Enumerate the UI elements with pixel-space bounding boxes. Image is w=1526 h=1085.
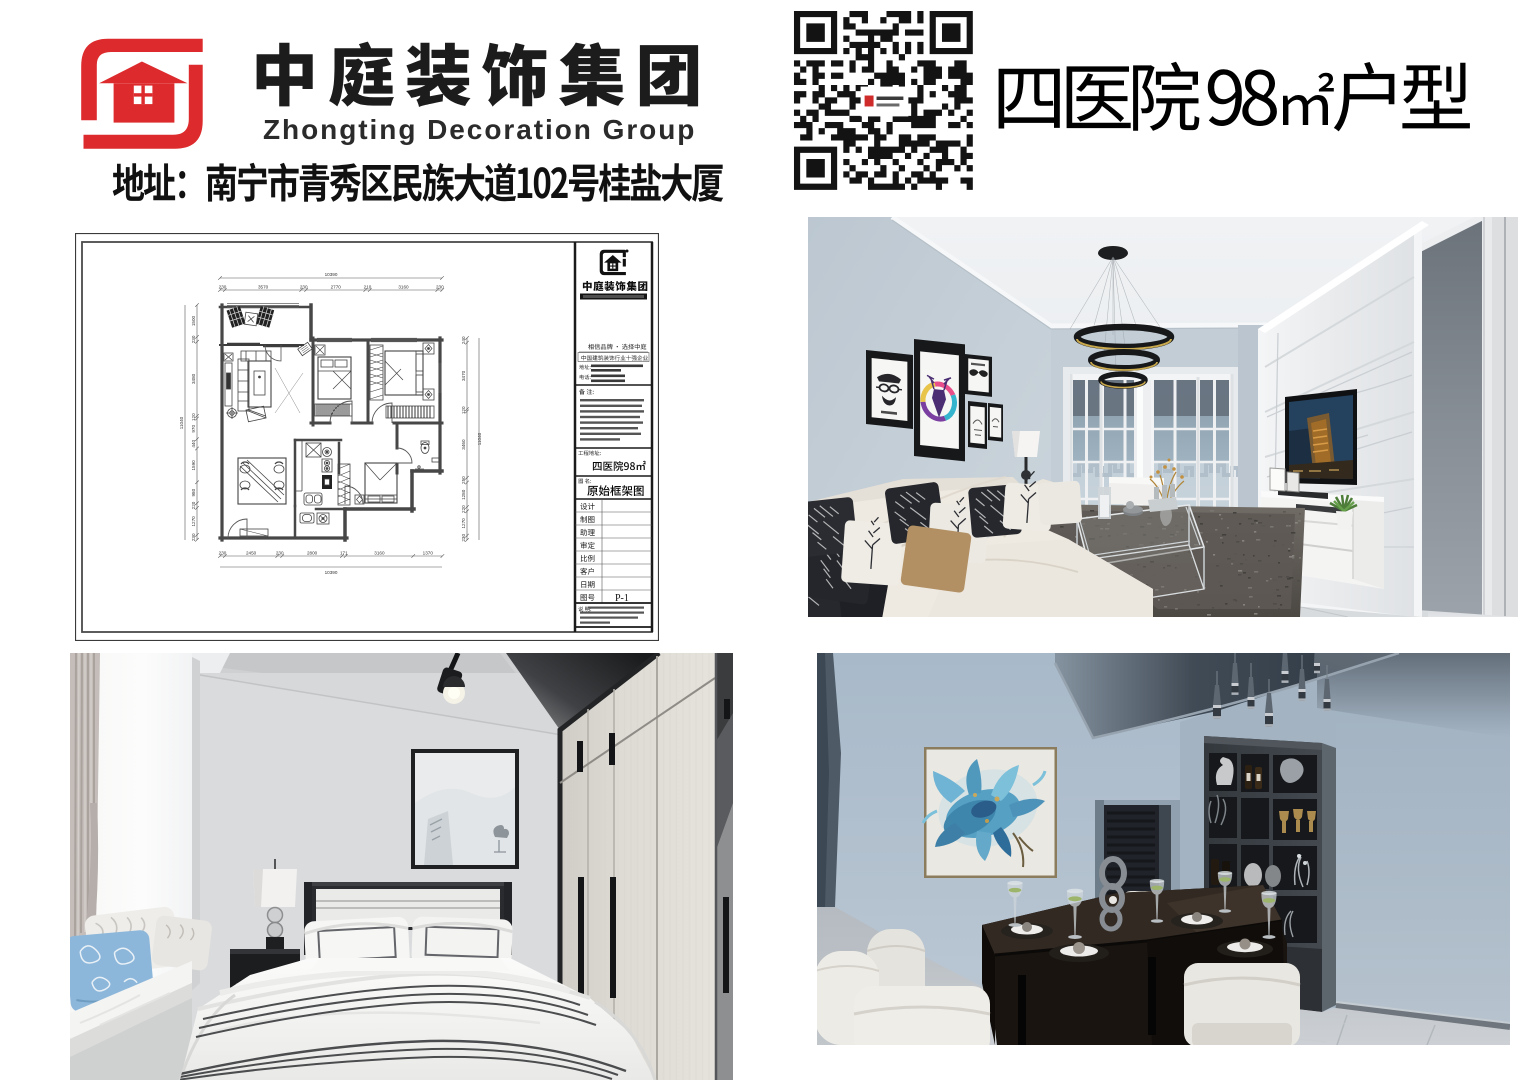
svg-text:230: 230 xyxy=(191,533,196,541)
svg-text:1500: 1500 xyxy=(191,315,196,326)
svg-text:120: 120 xyxy=(461,406,466,414)
svg-text:3480: 3480 xyxy=(191,373,196,384)
svg-text:240: 240 xyxy=(461,336,466,344)
svg-text:230: 230 xyxy=(276,551,284,556)
svg-text:230: 230 xyxy=(219,285,227,290)
svg-text:230: 230 xyxy=(191,335,196,343)
svg-text:3470: 3470 xyxy=(461,370,466,381)
svg-text:1370: 1370 xyxy=(423,551,434,556)
svg-text:440: 440 xyxy=(191,440,196,448)
svg-text:1590: 1590 xyxy=(191,460,196,471)
svg-text:230: 230 xyxy=(436,285,444,290)
svg-text:11040: 11040 xyxy=(477,432,482,445)
svg-text:1280: 1280 xyxy=(461,489,466,500)
svg-text:230: 230 xyxy=(461,534,466,542)
svg-text:1270: 1270 xyxy=(461,518,466,529)
svg-text:980: 980 xyxy=(191,488,196,496)
svg-text:171: 171 xyxy=(340,551,348,556)
svg-text:3160: 3160 xyxy=(398,285,409,290)
svg-text:11040: 11040 xyxy=(179,416,184,429)
svg-text:1270: 1270 xyxy=(191,516,196,527)
svg-text:120: 120 xyxy=(191,413,196,421)
svg-text:2450: 2450 xyxy=(246,551,257,556)
svg-text:2800: 2800 xyxy=(307,551,318,556)
svg-text:230: 230 xyxy=(219,551,227,556)
svg-text:250: 250 xyxy=(461,476,466,484)
svg-text:220: 220 xyxy=(461,505,466,513)
svg-text:3460: 3460 xyxy=(461,439,466,450)
svg-text:2770: 2770 xyxy=(331,285,342,290)
svg-text:220: 220 xyxy=(191,501,196,509)
svg-text:10390: 10390 xyxy=(325,272,338,277)
svg-text:970: 970 xyxy=(191,425,196,433)
svg-text:10390: 10390 xyxy=(325,570,338,575)
svg-text:210: 210 xyxy=(364,285,372,290)
svg-text:230: 230 xyxy=(300,285,308,290)
svg-text:3160: 3160 xyxy=(374,551,385,556)
svg-text:3570: 3570 xyxy=(258,285,269,290)
